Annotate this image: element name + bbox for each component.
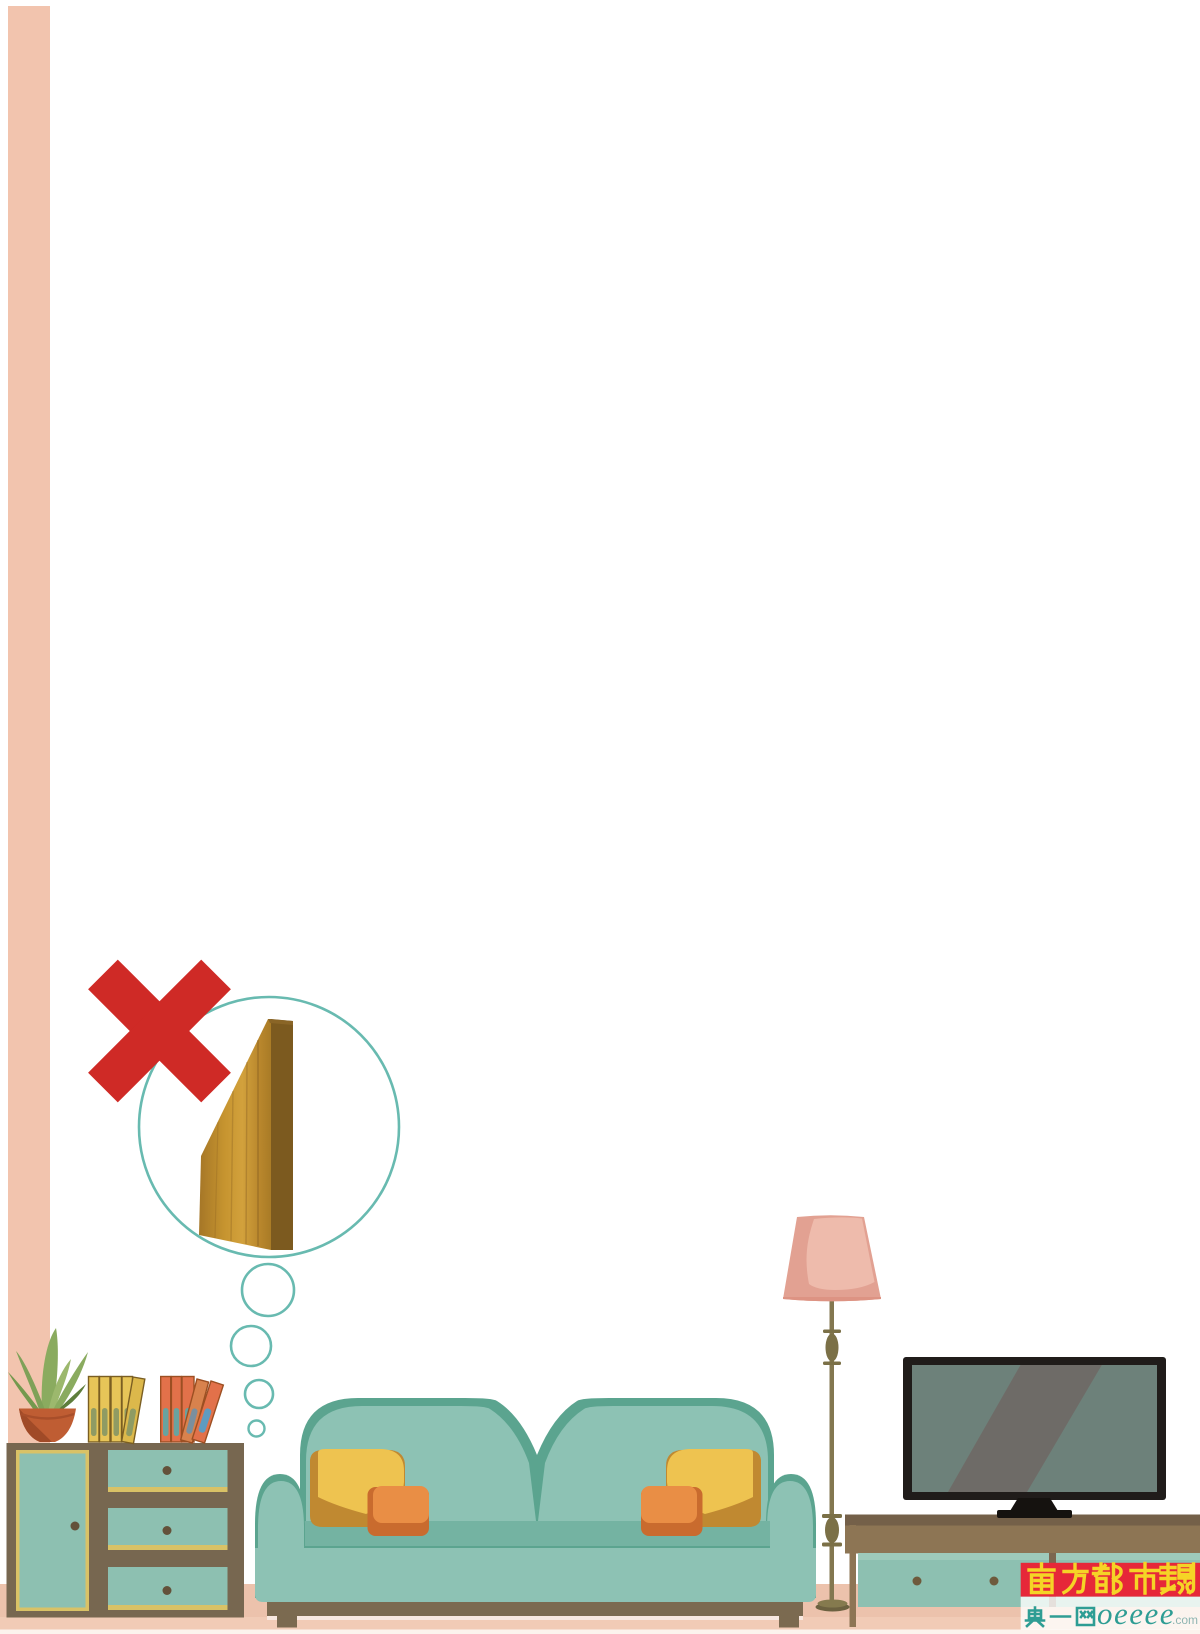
svg-text:.com: .com (1172, 1613, 1198, 1627)
svg-text:oeeee: oeeee (1097, 1596, 1175, 1631)
